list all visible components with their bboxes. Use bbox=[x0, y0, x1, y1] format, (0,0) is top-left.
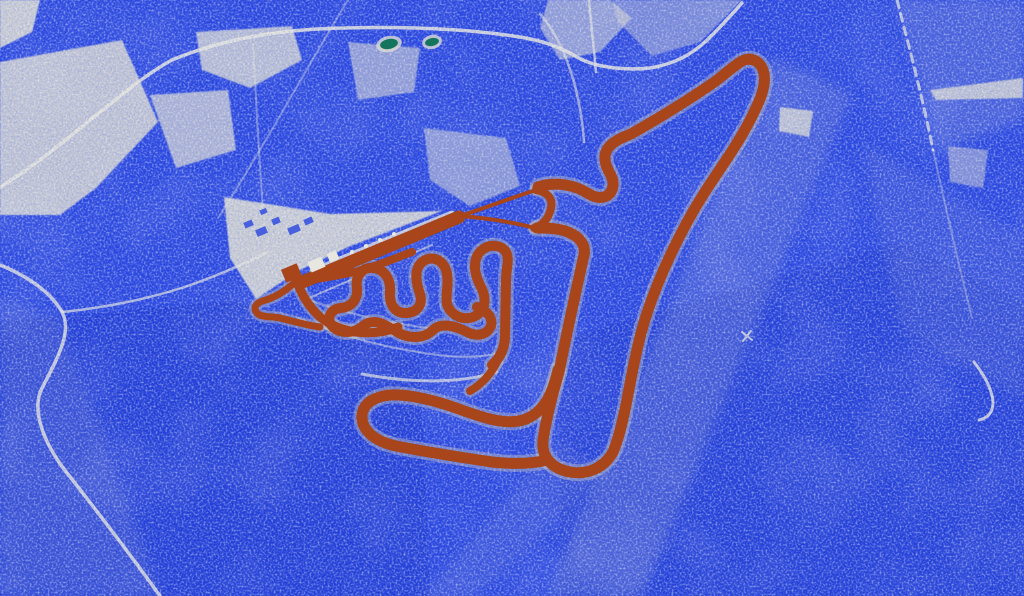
grid-dot-2 bbox=[364, 244, 368, 248]
grid-dot-4 bbox=[392, 232, 396, 236]
grid-dot-3 bbox=[378, 238, 382, 242]
map-canvas bbox=[0, 0, 1024, 596]
aerial-map bbox=[0, 0, 1024, 596]
grid-dot-1 bbox=[350, 250, 354, 254]
